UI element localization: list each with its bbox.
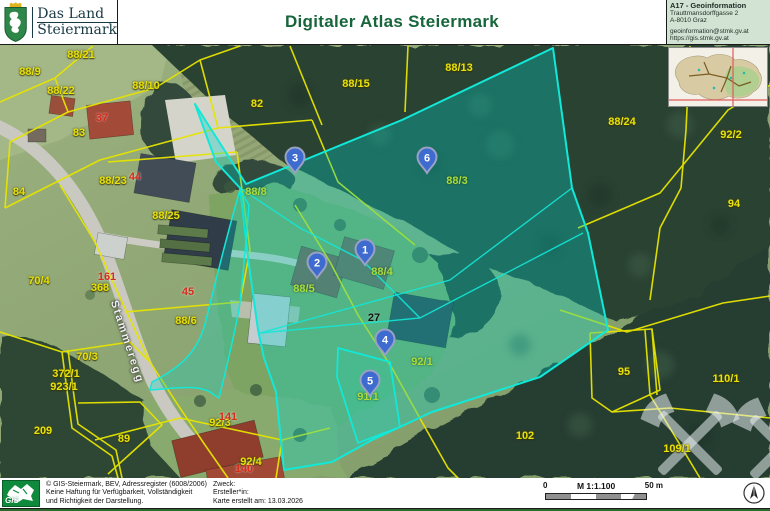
north-arrow-icon xyxy=(742,481,766,505)
parcel-label: 89 xyxy=(118,433,130,445)
parcel-label: 923/1 xyxy=(50,381,78,393)
parcel-label: 92/1 xyxy=(411,356,432,368)
copyright-line: und Richtigkeit der Darstellung. xyxy=(46,498,207,506)
digital-atlas-page: Das Land Steiermark Digitaler Atlas Stei… xyxy=(0,0,770,511)
parcel-label: 95 xyxy=(618,366,630,378)
map-marker-2[interactable]: 2 xyxy=(304,251,330,288)
parcel-label: 102 xyxy=(516,430,534,442)
scale-bar-graphic xyxy=(545,493,647,500)
parcel-label: 140 xyxy=(235,463,253,475)
contact-address2: A-8010 Graz xyxy=(670,17,767,25)
parcel-label: 84 xyxy=(13,186,25,198)
svg-text:6: 6 xyxy=(424,153,430,165)
purpose-label: Zweck: xyxy=(213,481,303,489)
styria-crest-icon xyxy=(3,2,28,43)
contact-dept: A17 - Geoinformation xyxy=(670,2,767,10)
parcel-label: 92/2 xyxy=(720,129,741,141)
scale-distance: 50 m xyxy=(645,481,663,491)
copyright-text: © GIS-Steiermark, BEV, Adressregister (6… xyxy=(46,481,207,506)
copyright-line: Keine Haftung für Verfügbarkeit, Vollstä… xyxy=(46,489,207,497)
parcel-label: 88/10 xyxy=(132,80,160,92)
parcel-label: 82 xyxy=(251,98,263,110)
date-label: Karte erstellt am: 13.03.2026 xyxy=(213,498,303,506)
parcel-label: 88/21 xyxy=(67,49,95,61)
parcel-label: 88/13 xyxy=(445,62,473,74)
parcel-label: 368 xyxy=(91,282,109,294)
parcel-label: 88/25 xyxy=(152,210,180,222)
parcel-label: 88/9 xyxy=(19,66,40,78)
contact-address1: Trauttmansdorffgasse 2 xyxy=(670,10,767,18)
parcel-label: 88/22 xyxy=(47,85,75,97)
parcel-label: 45 xyxy=(182,286,194,298)
land-steiermark-logo: Das Land Steiermark xyxy=(0,0,118,44)
parcel-label: 70/3 xyxy=(76,351,97,363)
map-footer: GIS © GIS-Steiermark, BEV, Adressregiste… xyxy=(0,478,770,509)
gis-steiermark-logo: GIS xyxy=(2,480,40,507)
aerial-basemap xyxy=(0,45,770,478)
parcel-label: 88/6 xyxy=(175,315,196,327)
overview-inset-map[interactable] xyxy=(668,47,768,107)
parcel-label: 88/23 xyxy=(99,175,127,187)
parcel-label: 27 xyxy=(368,312,380,324)
parcel-label: 209 xyxy=(34,425,52,437)
parcel-label: 109/1 xyxy=(663,443,691,455)
map-marker-5[interactable]: 5 xyxy=(357,369,383,406)
parcel-label: 88/24 xyxy=(608,116,636,128)
map-viewport[interactable]: 88/988/2188/2288/10833788/23448488/25828… xyxy=(0,45,770,478)
scale-ratio: M 1:1.100 xyxy=(577,481,615,491)
svg-text:3: 3 xyxy=(292,153,298,165)
parcel-label: 94 xyxy=(728,198,740,210)
svg-text:4: 4 xyxy=(382,335,389,347)
map-marker-6[interactable]: 6 xyxy=(414,146,440,183)
parcel-label: 70/4 xyxy=(28,275,49,287)
page-title: Digitaler Atlas Steiermark xyxy=(285,12,499,32)
svg-text:1: 1 xyxy=(362,245,368,257)
logo-line2: Steiermark xyxy=(37,22,117,38)
scale-zero: 0 xyxy=(543,481,547,491)
svg-text:2: 2 xyxy=(314,258,320,270)
map-marker-4[interactable]: 4 xyxy=(372,328,398,365)
contact-email: geoinformation@stmk.gv.at xyxy=(670,28,767,36)
map-marker-1[interactable]: 1 xyxy=(352,238,378,275)
svg-text:5: 5 xyxy=(367,376,373,388)
contact-info: A17 - Geoinformation Trauttmansdorffgass… xyxy=(666,0,770,44)
logo-line1: Das Land xyxy=(37,7,117,22)
parcel-label: 141 xyxy=(219,411,237,423)
parcel-label: 88/15 xyxy=(342,78,370,90)
parcel-label: 88/8 xyxy=(245,186,266,198)
parcel-label: 88/3 xyxy=(446,175,467,187)
gis-logo-text: GIS xyxy=(5,496,19,505)
parcel-label: 44 xyxy=(129,171,141,183)
scale-bar: 0 M 1:1.100 50 m xyxy=(543,481,663,500)
map-metadata: Zweck: Ersteller*in: Karte erstellt am: … xyxy=(213,481,303,506)
creator-label: Ersteller*in: xyxy=(213,489,303,497)
copyright-line: © GIS-Steiermark, BEV, Adressregister (6… xyxy=(46,481,207,489)
logo-wordmark: Das Land Steiermark xyxy=(32,7,117,38)
contact-url: https://gis.stmk.gv.at xyxy=(670,35,767,43)
parcel-label: 37 xyxy=(96,112,108,124)
map-marker-3[interactable]: 3 xyxy=(282,146,308,183)
parcel-label: 83 xyxy=(73,127,85,139)
parcel-label: 110/1 xyxy=(713,373,740,385)
parcel-label: 372/1 xyxy=(52,368,80,380)
app-header: Das Land Steiermark Digitaler Atlas Stei… xyxy=(0,0,770,45)
